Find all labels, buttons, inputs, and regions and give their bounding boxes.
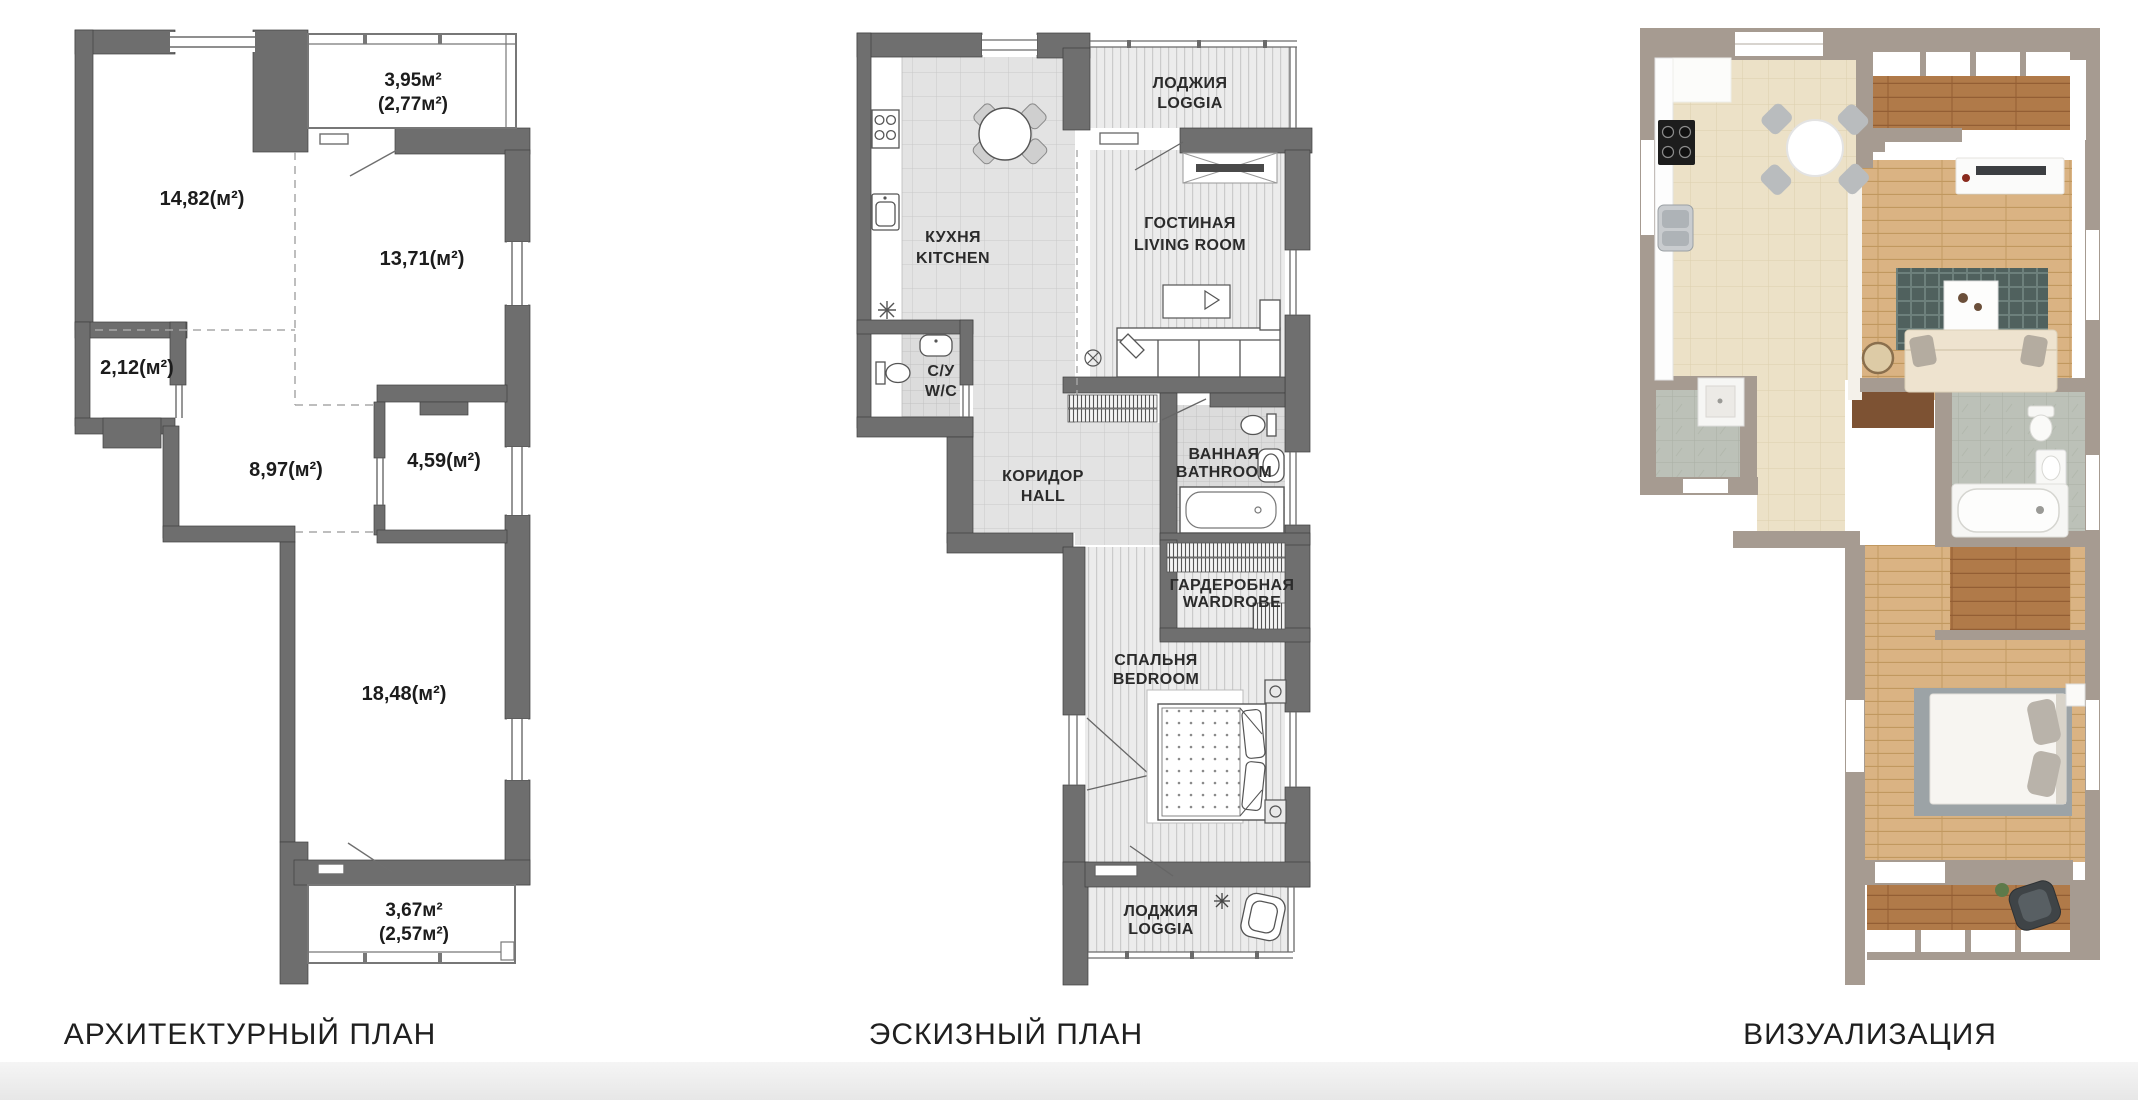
window xyxy=(1088,951,1293,959)
viz-bathtub-icon xyxy=(1952,484,2068,537)
window-mullion xyxy=(363,34,367,44)
tv-icon xyxy=(1183,153,1277,183)
label-bathroom-en: BATHROOM xyxy=(1176,464,1272,481)
viz-tv-console xyxy=(1956,158,2064,194)
nightstand-icon xyxy=(1265,800,1286,823)
wall xyxy=(947,437,973,543)
pillow-icon xyxy=(2020,334,2049,368)
area-label-loggia-bottom: 3,67м² xyxy=(385,900,442,921)
wall xyxy=(1063,862,1088,985)
window xyxy=(1873,52,2070,76)
wall xyxy=(947,533,1073,553)
wall xyxy=(857,417,973,437)
wall xyxy=(1640,28,1656,480)
kitchen-floor xyxy=(902,57,1075,322)
area-label-room-bottom: 18,48(м²) xyxy=(362,683,447,705)
viz-wc-unit xyxy=(1698,378,1744,426)
area-label-room-top-right: 13,71(м²) xyxy=(380,248,465,270)
viz-toilet-icon xyxy=(2028,406,2054,441)
viz-threshold xyxy=(1848,168,1862,400)
wall xyxy=(857,33,982,57)
wall xyxy=(1160,393,1177,540)
visualization-render xyxy=(1640,28,2100,985)
viz-wardrobe-floor xyxy=(1950,545,2070,633)
toilet-icon xyxy=(876,362,910,384)
arch-walls xyxy=(75,30,530,984)
floorplan-image: 3,95м² (2,77м²) 14,82(м²) 13,71(м²) 2,12… xyxy=(0,0,2138,1100)
wall xyxy=(857,320,973,334)
wall xyxy=(505,515,530,719)
sketch-plan: КУХНЯ KITCHEN ЛОДЖИЯ LOGGIA ГОСТИНАЯ LIV… xyxy=(857,33,1312,985)
plant-icon xyxy=(1214,893,1230,909)
label-kitchen-en: KITCHEN xyxy=(916,250,990,267)
label-loggia-bottom-en: LOGGIA xyxy=(1128,921,1194,938)
area-label-loggia-top-alt: (2,77м²) xyxy=(378,94,448,115)
window-post xyxy=(501,942,514,960)
wall xyxy=(75,30,93,330)
label-hall-en: HALL xyxy=(1021,488,1065,505)
loggia-chair-icon xyxy=(1239,891,1287,942)
wall xyxy=(420,402,468,415)
wall xyxy=(960,320,973,385)
closet-hatch xyxy=(1068,395,1157,422)
footer-band xyxy=(0,1062,2138,1100)
wall xyxy=(1063,377,1285,393)
label-living-ru: ГОСТИНАЯ xyxy=(1144,215,1236,232)
area-label-bathroom: 4,59(м²) xyxy=(407,450,481,472)
label-bedroom-ru: СПАЛЬНЯ xyxy=(1114,652,1197,669)
architectural-plan: 3,95м² (2,77м²) 14,82(м²) 13,71(м²) 2,12… xyxy=(75,30,530,984)
window xyxy=(377,458,383,505)
wall xyxy=(377,530,507,543)
label-loggia-top-ru: ЛОДЖИЯ xyxy=(1153,75,1228,92)
wall xyxy=(280,542,295,842)
label-hall-ru: КОРИДОР xyxy=(1002,468,1084,485)
arch-doors xyxy=(318,134,397,874)
viz-bath-sink-icon xyxy=(2036,450,2066,487)
viz-tv-icon xyxy=(1976,166,2046,175)
viz-plant-icon xyxy=(1995,883,2009,897)
viz-bed-icon xyxy=(1914,688,2072,816)
window xyxy=(507,719,528,780)
wall xyxy=(75,322,90,426)
wall xyxy=(1160,628,1310,642)
window xyxy=(507,447,528,515)
window xyxy=(2070,60,2086,140)
label-loggia-bottom-ru: ЛОДЖИЯ xyxy=(1124,903,1199,920)
wall xyxy=(505,150,530,242)
label-wc-ru: С/У xyxy=(927,363,955,380)
wall xyxy=(2070,880,2100,960)
coffee-table-icon xyxy=(1163,285,1230,318)
label-loggia-top-en: LOGGIA xyxy=(1157,95,1223,112)
wall xyxy=(377,385,507,402)
label-wardrobe-en: WARDROBE xyxy=(1183,594,1281,611)
wall xyxy=(1285,150,1310,250)
wall xyxy=(1285,315,1310,452)
label-wc-en: W/C xyxy=(925,383,957,400)
window xyxy=(1290,452,1296,525)
window xyxy=(963,385,969,417)
window xyxy=(1288,887,1294,952)
nightstand-icon xyxy=(1265,680,1286,703)
viz-sink-icon xyxy=(1658,205,1693,251)
window xyxy=(2086,230,2099,320)
bath-toilet-icon xyxy=(1241,414,1276,436)
wc-sink-icon xyxy=(920,335,952,356)
door-opening xyxy=(1846,700,1864,772)
door-swing xyxy=(350,150,397,176)
stove-icon xyxy=(872,110,899,148)
area-label-loggia-bottom-alt: (2,57м²) xyxy=(379,924,449,945)
area-label-niche: 2,12(м²) xyxy=(100,357,174,379)
label-wardrobe-ru: ГАРДЕРОБНАЯ xyxy=(1170,577,1295,594)
wall xyxy=(2068,28,2100,60)
wall xyxy=(163,426,179,538)
door-opening xyxy=(1875,862,1945,883)
wall xyxy=(1285,525,1310,712)
window xyxy=(1885,142,1962,160)
window xyxy=(176,385,182,418)
wall xyxy=(253,30,308,152)
window xyxy=(1290,47,1296,128)
bathtub-icon xyxy=(1180,487,1284,533)
viz-round-mat xyxy=(1863,343,1893,373)
wall xyxy=(1063,48,1090,130)
wall xyxy=(1935,390,1952,542)
window xyxy=(1867,930,2070,952)
door-opening xyxy=(1683,479,1728,493)
caption-sketch: ЭСКИЗНЫЙ ПЛАН xyxy=(869,1017,1143,1051)
wall xyxy=(505,305,530,447)
wall xyxy=(1210,393,1285,407)
viz-closet xyxy=(1852,390,1934,428)
pillow-icon xyxy=(1909,334,1938,368)
door-leaf xyxy=(1100,133,1138,144)
window xyxy=(1641,140,1654,235)
window xyxy=(1069,715,1077,785)
viz-loggia-top-floor xyxy=(1873,75,2070,130)
door-leaf xyxy=(320,134,348,144)
area-label-loggia-top: 3,95м² xyxy=(384,70,441,91)
viz-stove-icon xyxy=(1658,120,1695,165)
floorplan-sheet: 3,95м² (2,77м²) 14,82(м²) 13,71(м²) 2,12… xyxy=(0,0,2138,1100)
viz-cabinets xyxy=(1673,58,1731,102)
window xyxy=(507,242,528,305)
hall-floor xyxy=(1075,423,1160,545)
label-kitchen-ru: КУХНЯ xyxy=(925,229,981,246)
wall xyxy=(857,33,871,428)
bed-icon xyxy=(1147,690,1266,823)
viz-hall-floor xyxy=(1757,380,1845,535)
wall xyxy=(374,402,385,458)
kitchen-sink-icon xyxy=(872,194,899,230)
wall xyxy=(1180,128,1312,153)
window xyxy=(982,35,1037,55)
window xyxy=(1290,712,1296,787)
label-living-en: LIVING ROOM xyxy=(1134,237,1246,254)
window xyxy=(2086,455,2099,530)
door-leaf xyxy=(318,864,344,874)
wall xyxy=(103,418,161,448)
window xyxy=(2086,700,2099,790)
wall xyxy=(1935,630,2085,640)
window xyxy=(170,32,255,52)
window-mullion xyxy=(438,34,442,44)
wall xyxy=(163,526,295,542)
viz-sofa-icon xyxy=(1905,330,2057,392)
area-label-hall: 8,97(м²) xyxy=(249,459,323,481)
label-bedroom-en: BEDROOM xyxy=(1113,671,1199,688)
door-leaf xyxy=(1095,865,1137,876)
window-mullion xyxy=(438,953,442,963)
viz-coffee-table-icon xyxy=(1944,281,1998,331)
viz-nightstand xyxy=(2066,684,2085,706)
window xyxy=(1735,32,1823,56)
boiler-icon xyxy=(878,301,896,319)
window xyxy=(1290,250,1296,315)
caption-visualization: ВИЗУАЛИЗАЦИЯ xyxy=(1743,1018,1997,1051)
wall xyxy=(1063,547,1085,715)
window-mullion xyxy=(363,953,367,963)
area-label-room-top-left: 14,82(м²) xyxy=(160,188,245,210)
caption-architectural: АРХИТЕКТУРНЫЙ ПЛАН xyxy=(64,1017,437,1051)
window xyxy=(1090,40,1297,48)
wall xyxy=(1733,531,1860,548)
label-bathroom-ru: ВАННАЯ xyxy=(1189,446,1260,463)
